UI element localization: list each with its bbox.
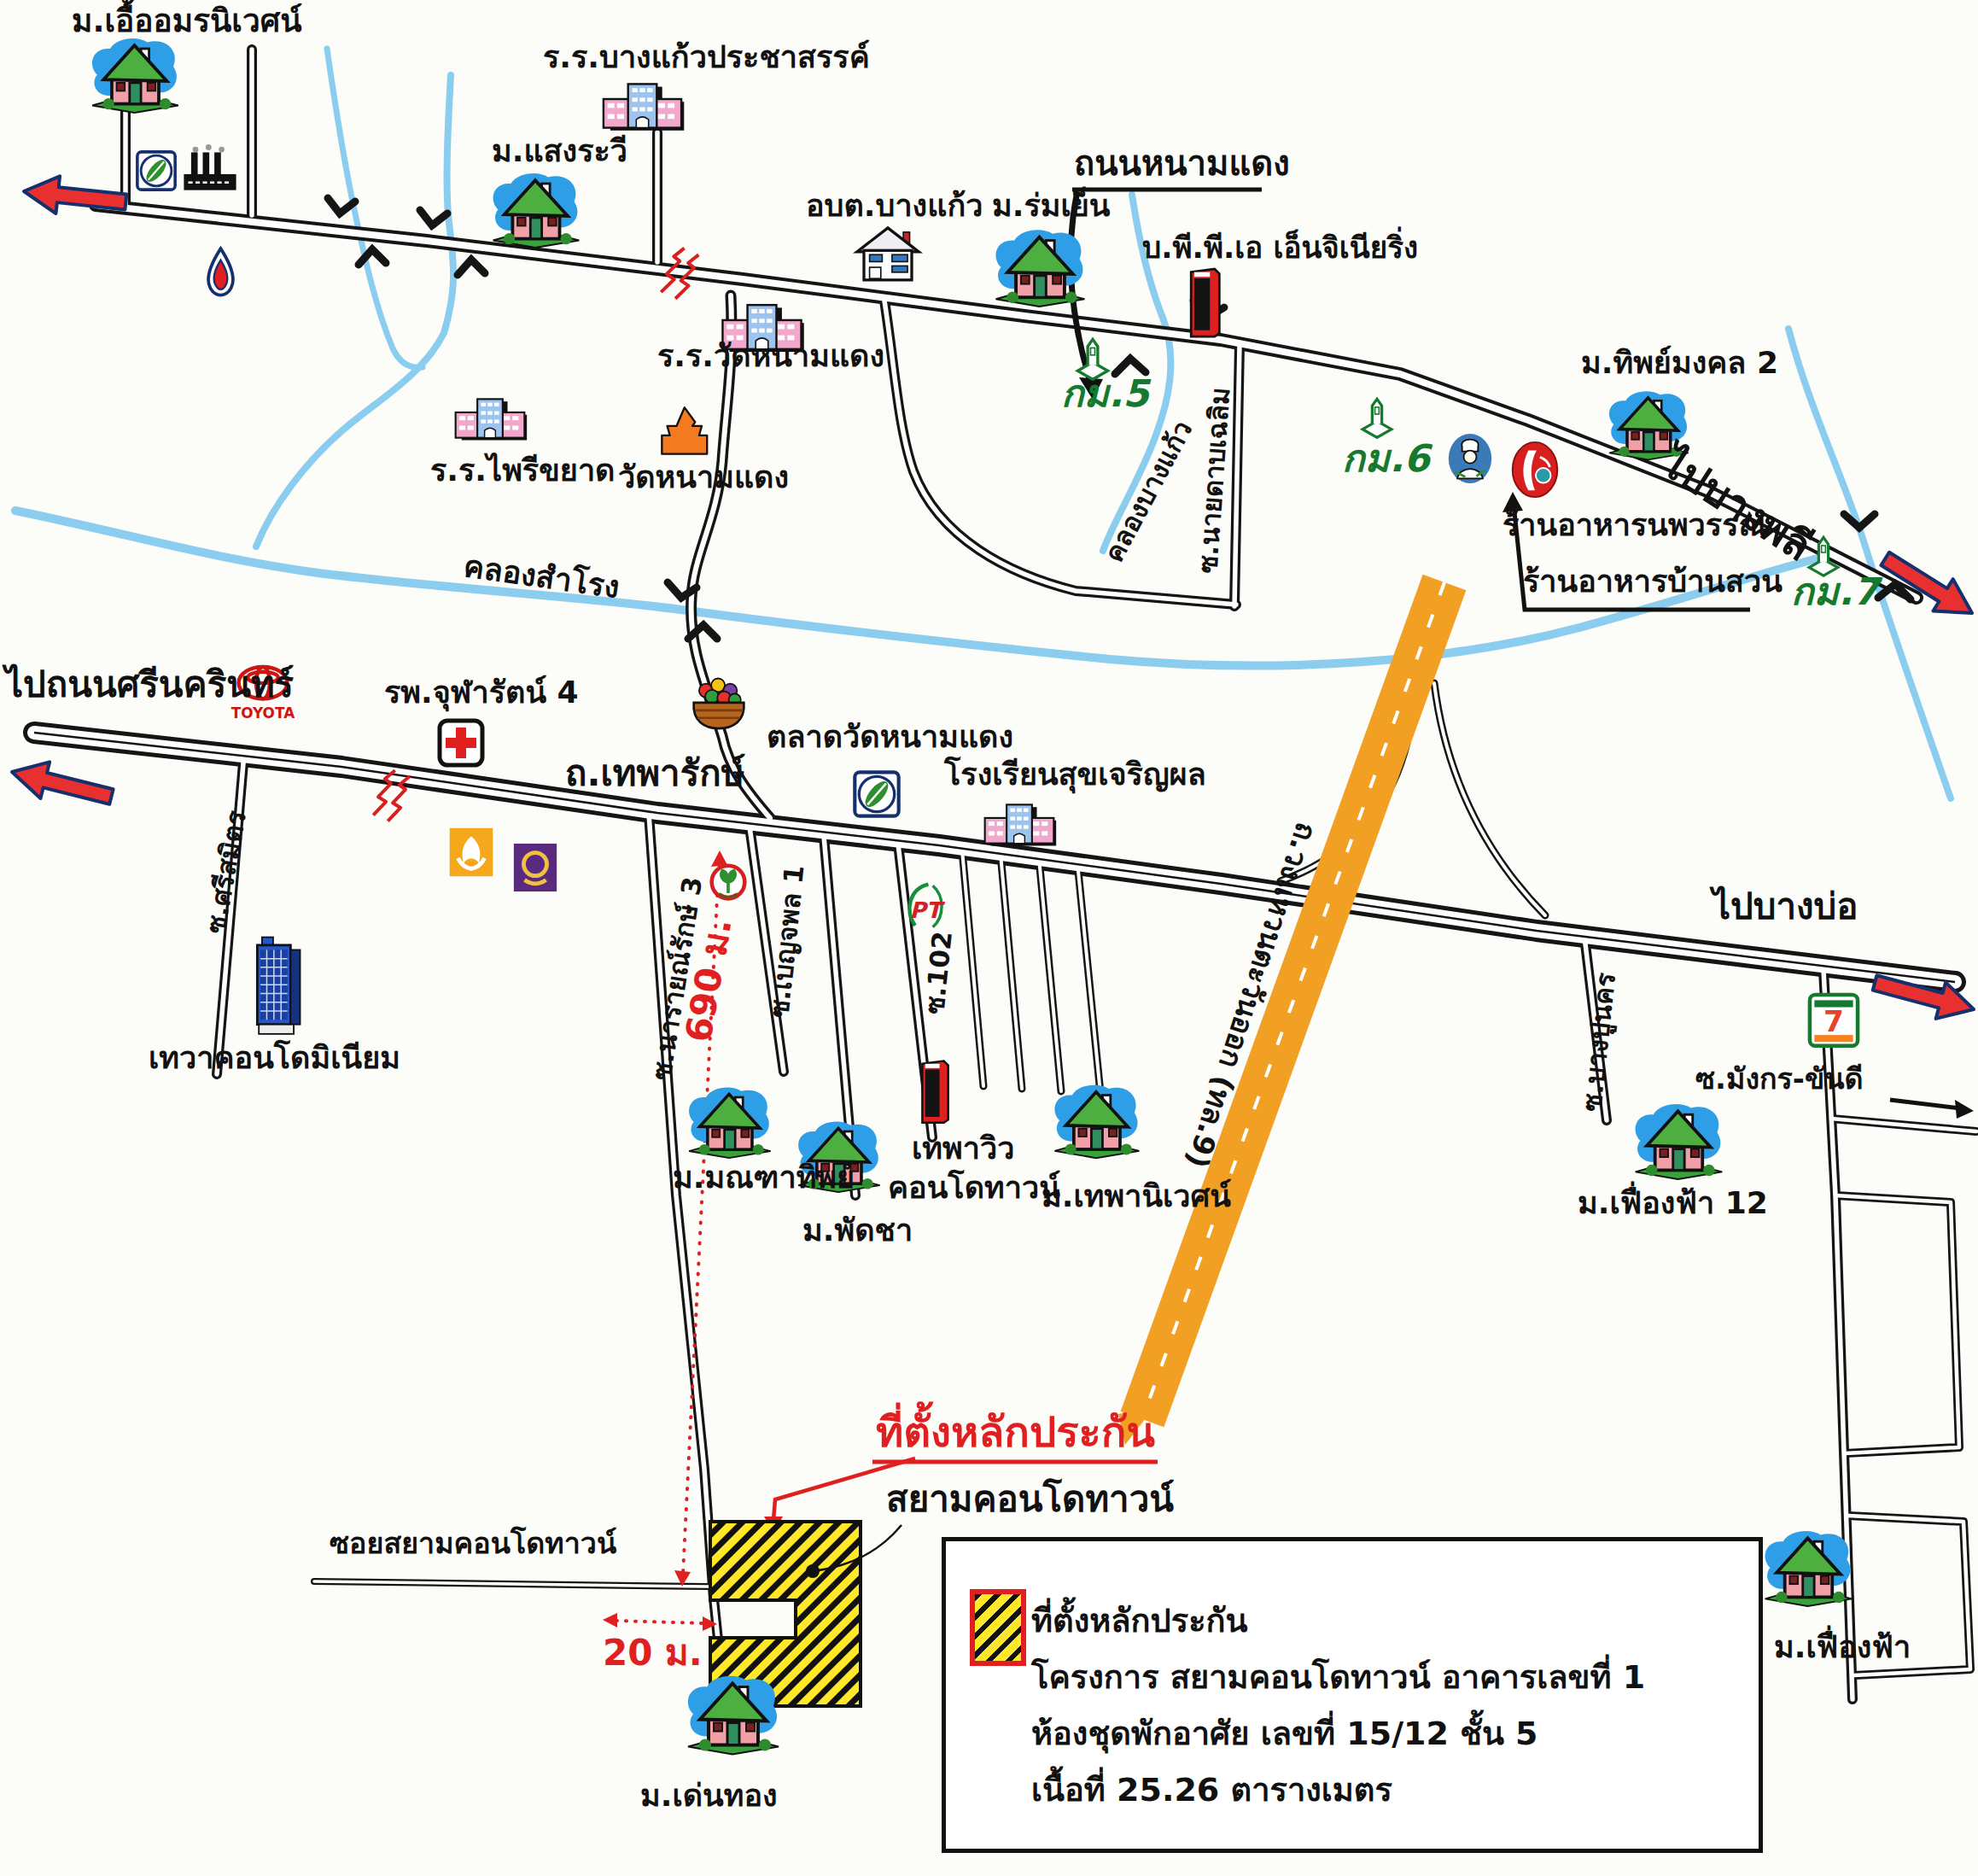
legend-line-3: ห้องชุดพักอาศัย เลขที่ 15/12 ชั้น 5	[1031, 1707, 1538, 1759]
label-th-wongwaen-tawan-ok: ถ.วงแหวนตะวันออก (ทล.9)	[1181, 819, 1322, 1172]
label-ran-ahan-nopphawan: ร้านอาหารนพวรรณ	[1502, 509, 1767, 541]
label-rr-wat-nam-daeng: ร.ร.วัดหนามแดง	[657, 340, 884, 372]
map: TOYOTA PT 7	[0, 0, 1978, 1876]
label-talat-wat-nam-daeng: ตลาดวัดหนามแดง	[767, 721, 1013, 753]
label-soi-benchaphon-1: ซ.เบญจพล 1	[765, 864, 808, 1020]
label-thanon-nam-daeng: ถนนหนามแดง	[1074, 145, 1290, 181]
label-rr-phairi-khayat: ร.ร.ไพรีขยาด	[430, 454, 616, 487]
label-pai-bang-phli: ไปบางพลี	[1655, 441, 1819, 568]
label-soi-mangkon-khandi: ซ.มังกร-ขันดี	[1695, 1064, 1864, 1095]
label-m-thip-mongkhon-2: ม.ทิพย์มงคล 2	[1581, 347, 1778, 379]
label-km-5: กม.5	[1061, 374, 1149, 413]
legend-hatch-swatch	[970, 1589, 1026, 1666]
label-rr-bangkaew-prachasan: ร.ร.บางแก้วประชาสรรค์	[543, 41, 870, 73]
label-m-monthathip: ม.มณฑาทิพย์	[673, 1161, 855, 1194]
site-subtitle: สยามคอนโดทาวน์	[886, 1470, 1174, 1527]
label-m-saeng-rawi: ม.แสงระวี	[492, 135, 627, 167]
label-condo-town: คอนโดทาวน์	[888, 1172, 1060, 1204]
legend-line-2: โครงการ สยามคอนโดทาวน์ อาคารเลขที่ 1	[1031, 1651, 1645, 1703]
label-b-ppa-engineering: บ.พี.พี.เอ เอ็นจิเนียริ่ง	[1142, 232, 1418, 264]
label-soi-nai-dap-chalerm: ซ.นายดาบเฉลิม	[1193, 387, 1234, 575]
label-pai-bang-bo: ไปบางบ่อ	[1713, 888, 1858, 926]
label-soi-siam-condo-town: ซอยสยามคอนโดทาวน์	[330, 1528, 616, 1559]
label-thepha-view: เทพาวิว	[912, 1132, 1014, 1165]
label-m-rom-yen: ม.ร่มเย็น	[992, 190, 1110, 222]
label-km-7: กม.7	[1791, 572, 1879, 611]
label-soi-bang-pu-nakhon: ซ.บางปูนคร	[1578, 972, 1619, 1113]
site-title: ที่ตั้งหลักประกัน	[876, 1399, 1155, 1465]
label-obt-bangkaew: อบต.บางแก้ว	[806, 190, 983, 222]
label-wat-nam-daeng: วัดหนามแดง	[618, 461, 789, 494]
label-th-thepharak: ถ.เทพารักษ์	[565, 755, 744, 792]
label-ran-ahan-ban-suan: ร้านอาหารบ้านสวน	[1523, 565, 1783, 598]
label-soi-102: ซ.102	[920, 930, 957, 1015]
label-rph-chularat-4: รพ.จุฬารัตน์ 4	[384, 676, 579, 709]
label-m-thepha-niwet: ม.เทพานิเวศน์	[1042, 1180, 1231, 1213]
label-m-fueangfa-12: ม.เฟื่องฟ้า 12	[1578, 1187, 1768, 1219]
label-km-6: กม.6	[1342, 439, 1430, 478]
label-m-den-thong: ม.เด่นทอง	[640, 1780, 778, 1812]
label-soi-srisamit: ซ.ศรีสมิตร	[201, 809, 250, 936]
label-rongrian-suk-charoen-phon: โรงเรียนสุขเจริญผล	[944, 758, 1206, 791]
legend-line-1: ที่ตั้งหลักประกัน	[1031, 1594, 1248, 1646]
legend: ที่ตั้งหลักประกัน โครงการ สยามคอนโดทาวน์…	[942, 1537, 1763, 1853]
label-khlong-bangkaew: คลองบางแก้ว	[1100, 416, 1197, 566]
label-m-phatcha: ม.พัดชา	[802, 1214, 913, 1247]
label-dist-20-m: 20 ม.	[603, 1634, 703, 1672]
label-m-fueangfa: ม.เฟื่องฟ้า	[1774, 1631, 1911, 1663]
label-pai-thanon-srinakarin: ไปถนนศรีนครินทร์	[5, 666, 294, 704]
label-thewa-condominium: เทวาคอนโดมิเนียม	[149, 1042, 400, 1074]
legend-line-4: เนื้อที่ 25.26 ตารางเมตร	[1031, 1763, 1392, 1815]
label-m-uea-amorn-niwet: ม.เอื้ออมรนิเวศน์	[72, 5, 302, 38]
label-khlong-samrong: คลองสำโรง	[462, 550, 621, 604]
